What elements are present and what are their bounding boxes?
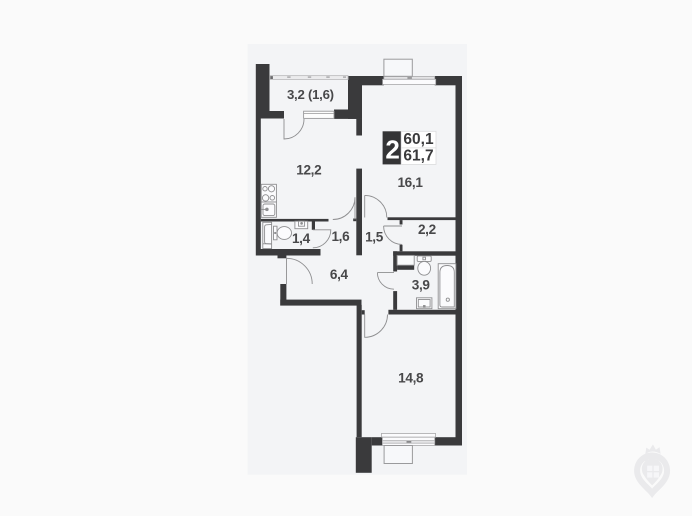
svg-text:3,2 (1,6): 3,2 (1,6) <box>287 87 334 102</box>
svg-text:1,5: 1,5 <box>365 229 384 244</box>
svg-text:61,7: 61,7 <box>403 147 433 164</box>
svg-text:1,6: 1,6 <box>331 229 350 244</box>
svg-text:60,1: 60,1 <box>403 131 434 148</box>
svg-text:1,4: 1,4 <box>292 231 311 246</box>
svg-text:6,4: 6,4 <box>330 267 349 282</box>
svg-text:14,8: 14,8 <box>398 370 424 385</box>
svg-text:3,9: 3,9 <box>412 277 431 292</box>
svg-text:16,1: 16,1 <box>397 175 423 190</box>
svg-text:2: 2 <box>385 135 399 165</box>
svg-text:2,2: 2,2 <box>418 222 437 237</box>
svg-text:12,2: 12,2 <box>296 163 322 178</box>
